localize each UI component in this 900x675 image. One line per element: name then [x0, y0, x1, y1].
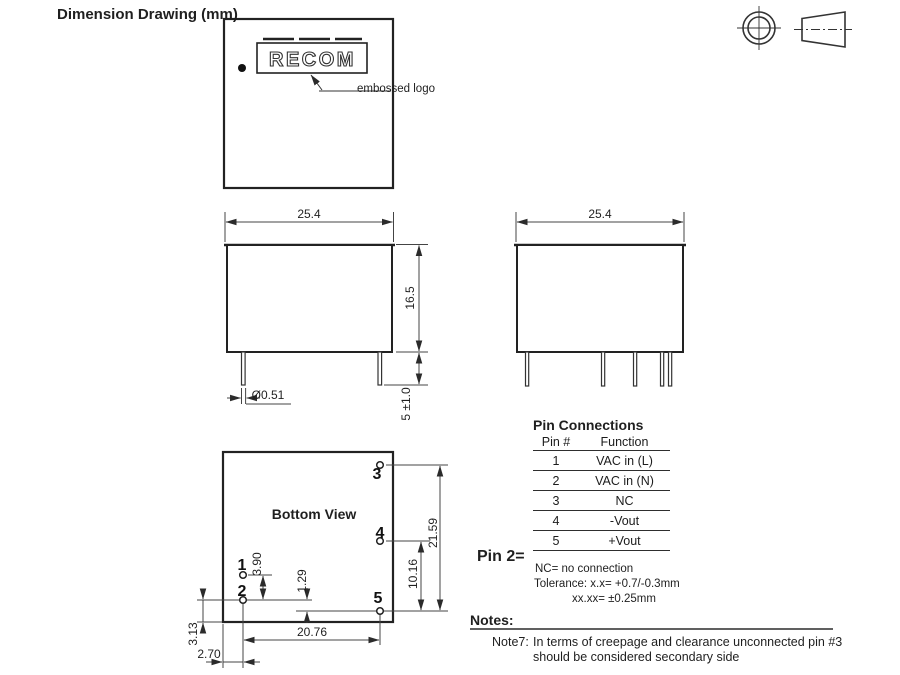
embossed-logo-label: embossed logo: [357, 84, 435, 96]
function-cell: +Vout: [579, 534, 670, 548]
note7-id: Note7:: [492, 636, 529, 649]
pin-table-header-function: Function: [579, 435, 670, 449]
pin-cell: 4: [533, 514, 579, 528]
pin-3-label: 3: [373, 467, 382, 483]
pin-cell: 5: [533, 534, 579, 548]
pin-connections-table: Pin # Function 1 VAC in (L) 2 VAC in (N)…: [533, 434, 670, 551]
front-pin-length-dim-lines: [384, 353, 428, 385]
notes-title: Notes:: [470, 613, 514, 627]
function-cell: VAC in (N): [579, 474, 670, 488]
tolerance-line1: Tolerance: x.x= +0.7/-0.3mm: [534, 579, 680, 591]
pin2-callout: Pin 2=: [477, 549, 525, 565]
pin-cell: 1: [533, 454, 579, 468]
pin-1-label: 1: [238, 558, 247, 574]
note7-line1: In terms of creepage and clearance uncon…: [533, 636, 842, 649]
recom-logo-text: RECOM: [269, 49, 356, 71]
tolerance-line2: xx.xx= ±0.25mm: [572, 594, 656, 606]
front-height-dim: 16.5: [404, 286, 416, 309]
front-width-dim: 25.4: [297, 208, 320, 220]
pin-cell: 2: [533, 474, 579, 488]
function-cell: -Vout: [579, 514, 670, 528]
top-view-drawing: RECOM: [224, 19, 393, 188]
projection-symbol-icon: [737, 6, 852, 50]
pin-5-label: 5: [374, 591, 383, 607]
dimension-drawing-page: RECOM: [0, 0, 900, 675]
pin-4-label: 4: [376, 526, 385, 542]
table-row: 3 NC: [533, 491, 670, 511]
dim-3-13: 3.13: [187, 622, 199, 645]
function-cell: VAC in (L): [579, 454, 670, 468]
table-row: 5 +Vout: [533, 531, 670, 551]
dim-21-59: 21.59: [427, 518, 439, 548]
dim-3-90: 3.90: [251, 552, 263, 575]
nc-note: NC= no connection: [535, 564, 633, 576]
pin-table-header-row: Pin # Function: [533, 434, 670, 451]
table-row: 2 VAC in (N): [533, 471, 670, 491]
pin-table-title: Pin Connections: [533, 418, 643, 432]
table-row: 1 VAC in (L): [533, 451, 670, 471]
front-pin-length-dim: 5 ±1.0: [400, 387, 412, 420]
pin-table-header-pin: Pin #: [533, 435, 579, 449]
dim-10-16: 10.16: [407, 559, 419, 589]
dim-1-29: 1.29: [296, 569, 308, 592]
side-view-drawing: [514, 212, 686, 386]
front-pin-diameter-dim: Ø0.51: [252, 389, 285, 401]
bottom-view-title: Bottom View: [272, 507, 357, 521]
pin-cell: 3: [533, 494, 579, 508]
note7-line2: should be considered secondary side: [533, 651, 739, 664]
front-view-drawing: [224, 212, 428, 404]
dim-20-76: 20.76: [297, 626, 327, 638]
function-cell: NC: [579, 494, 670, 508]
front-left-pin: [242, 352, 246, 385]
front-right-pin: [378, 352, 382, 385]
pin-5-hole: [377, 608, 384, 615]
page-title: Dimension Drawing (mm): [57, 7, 238, 22]
side-width-dim: 25.4: [588, 208, 611, 220]
drawing-linework: RECOM: [0, 0, 900, 675]
dim-2-70: 2.70: [197, 648, 220, 660]
pin1-index-dot: [238, 64, 246, 72]
table-row: 4 -Vout: [533, 511, 670, 531]
pin-2-label: 2: [238, 584, 247, 600]
